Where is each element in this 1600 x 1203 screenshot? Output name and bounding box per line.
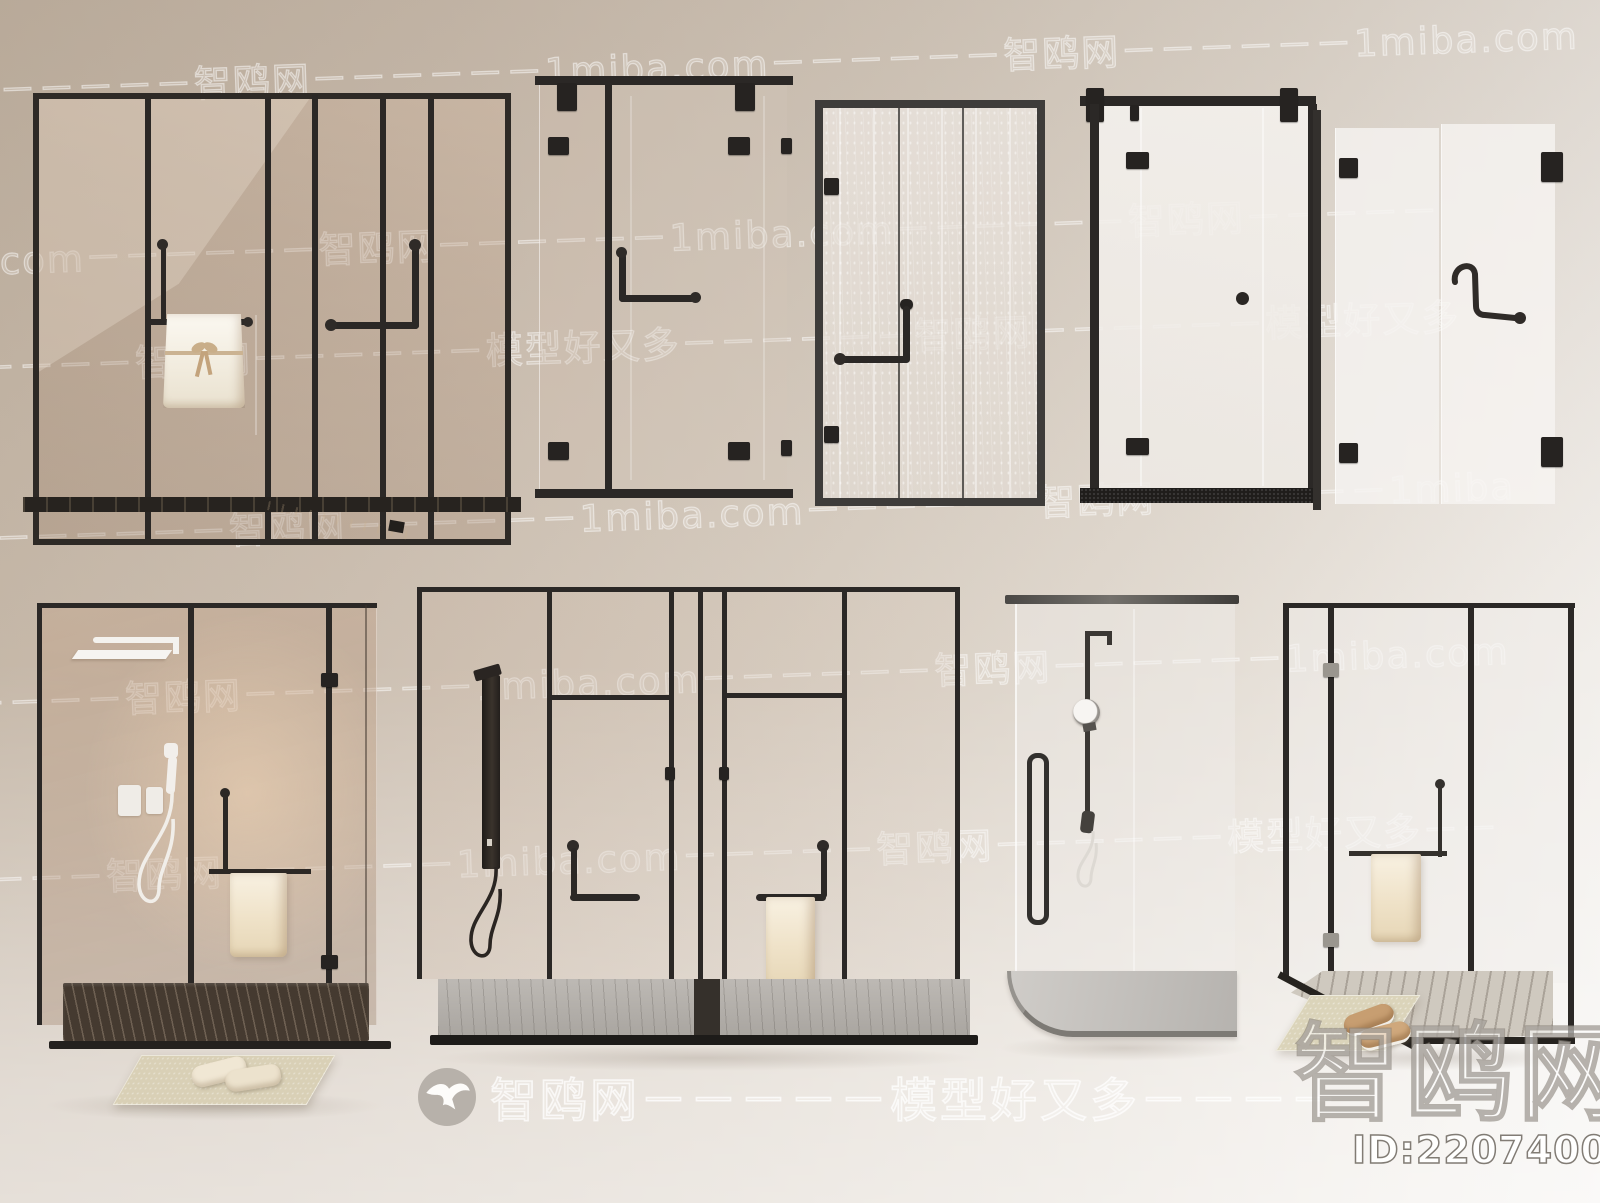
door-handle-cap (616, 247, 627, 258)
header-bracket (1280, 88, 1298, 122)
door-handle-hook (1441, 260, 1531, 328)
pivot-door-edge (265, 97, 271, 539)
door-stile (722, 587, 727, 979)
door-stile (669, 587, 674, 979)
shower-hose (128, 791, 184, 919)
door-hinge (728, 442, 750, 460)
frame-post (188, 603, 194, 1025)
frame-mullion (380, 99, 386, 539)
glass-highlight (255, 315, 257, 435)
tray-center-divider (694, 979, 720, 1037)
door-hinge (728, 137, 750, 155)
towel-rack-post (223, 793, 228, 871)
glass-door-panel (612, 85, 787, 489)
door-hinge (1126, 438, 1149, 455)
top-rail (417, 587, 960, 592)
top-rail-metal (1005, 595, 1239, 604)
curved-corner-enclosure-model (985, 583, 1247, 1063)
frame-post (955, 587, 960, 979)
glass-highlight (630, 96, 632, 480)
rain-shower-arm (93, 637, 179, 643)
curved-shower-tray (1007, 971, 1237, 1037)
frame-post (842, 587, 847, 979)
footer-watermark-text: 智鸥网－－－－－模型好又多－－－－ (490, 1062, 1340, 1131)
door-hinge (548, 442, 569, 460)
pivot-door-edge (312, 95, 318, 541)
tray-front-rim (430, 1035, 978, 1045)
transom-bar (722, 693, 847, 698)
textured-sliding-door-model (815, 100, 1045, 506)
footer-watermark: 智鸥网－－－－－模型好又多－－－－ (418, 1062, 1340, 1131)
glass-hinge (1323, 663, 1339, 677)
door-hinge (321, 955, 338, 969)
shower-hose (462, 867, 520, 971)
frame-post (1283, 603, 1289, 979)
shower-column-rod (1085, 633, 1090, 831)
threshold-stone (1080, 488, 1318, 503)
hand-shower-round (1073, 699, 1100, 726)
towel-bar-post (1438, 785, 1442, 857)
door-handle-vertical (821, 848, 827, 898)
center-post (605, 85, 612, 489)
shower-partition-framed-model (33, 93, 511, 545)
door-hinge (1126, 152, 1149, 169)
towel-bar-post (161, 245, 166, 323)
door-latch (719, 767, 729, 780)
model-id-badge: ID:220740088 (1352, 1128, 1600, 1172)
rail-clamp (735, 83, 755, 111)
door-hinge (321, 673, 338, 687)
frame-post (1568, 603, 1574, 1043)
shower-column-arm (1107, 631, 1112, 645)
frame-clamp (824, 178, 839, 195)
header-clamp (1130, 105, 1139, 121)
product-render-canvas: －－－－－－智鸥网－－－－－－1miba.com－－－－－－智鸥网－－－－－－1… (0, 0, 1600, 1203)
shower-panel-button (487, 839, 492, 846)
panel-divider (962, 108, 964, 498)
glass-hinge (1339, 443, 1358, 463)
towel-rack-cap (220, 788, 230, 798)
glass-hinge (1323, 933, 1339, 947)
frame-clamp (824, 426, 839, 443)
door-handle-bar (619, 295, 695, 302)
double-door-enclosure-model (410, 583, 970, 1063)
door-handle-cap (834, 353, 846, 365)
panel-divider-highlight (1262, 108, 1264, 486)
wall-clamp (781, 138, 792, 154)
rain-shower-head (72, 650, 172, 659)
door-knob (1236, 292, 1249, 305)
seagull-logo (418, 1068, 476, 1126)
frosted-pivot-door-model (1062, 88, 1320, 504)
shower-tray-wood (63, 983, 369, 1041)
frame-post (37, 603, 42, 1025)
frameless-hinged-door-model (535, 76, 793, 504)
frame-mullion (428, 99, 434, 539)
door-handle-vertical (903, 306, 910, 362)
wall-clamp (781, 440, 792, 456)
frame-post (417, 587, 422, 979)
rain-shower-arm (173, 637, 179, 654)
glass-highlight (763, 96, 765, 480)
rail-clamp (557, 83, 577, 111)
door-handle-cap (690, 292, 701, 303)
floor-shadow (430, 1045, 978, 1071)
hanging-towel (1371, 854, 1421, 942)
hanging-towel (766, 897, 815, 989)
wall-clamp (1541, 437, 1563, 467)
door-handle-vertical (412, 245, 419, 329)
door-handle-vertical (571, 848, 577, 898)
side-frame (1090, 104, 1099, 490)
frame-post (547, 587, 552, 979)
floor-shadow (999, 1035, 1249, 1061)
wall-profile (1313, 110, 1321, 510)
bottom-rail (535, 489, 793, 498)
wall-clamp (1541, 152, 1563, 182)
shower-hose (1071, 831, 1105, 895)
door-handle-bar (570, 894, 640, 901)
door-frame (815, 100, 1045, 506)
towel-with-ribbon (163, 314, 245, 408)
door-foot-block (388, 520, 405, 533)
corner-shower-enclosure-model (33, 593, 393, 1113)
door-hinge (548, 137, 569, 155)
glass-edge (365, 605, 367, 1023)
door-handle-cap (325, 319, 337, 331)
base-rim (1408, 1037, 1575, 1044)
door-handle-cap (409, 239, 421, 251)
door-pull-handle (1027, 753, 1049, 925)
door-stile (698, 587, 703, 987)
door-frame (33, 93, 511, 545)
towel-bar-cap (157, 239, 168, 250)
neo-angle-enclosure-model (1263, 593, 1583, 1073)
transom-bar (547, 695, 674, 700)
top-rail (1283, 603, 1575, 608)
base-sill (49, 1041, 391, 1049)
towel-bar-cap (243, 317, 253, 327)
glass-hinge (1339, 158, 1358, 178)
hanging-towel (230, 873, 287, 957)
door-latch (665, 767, 675, 780)
panel-edge-highlight (1133, 609, 1135, 973)
door-handle-bar (840, 356, 910, 363)
door-handle-bar (330, 322, 419, 329)
frameless-frosted-door-model (1313, 110, 1563, 510)
